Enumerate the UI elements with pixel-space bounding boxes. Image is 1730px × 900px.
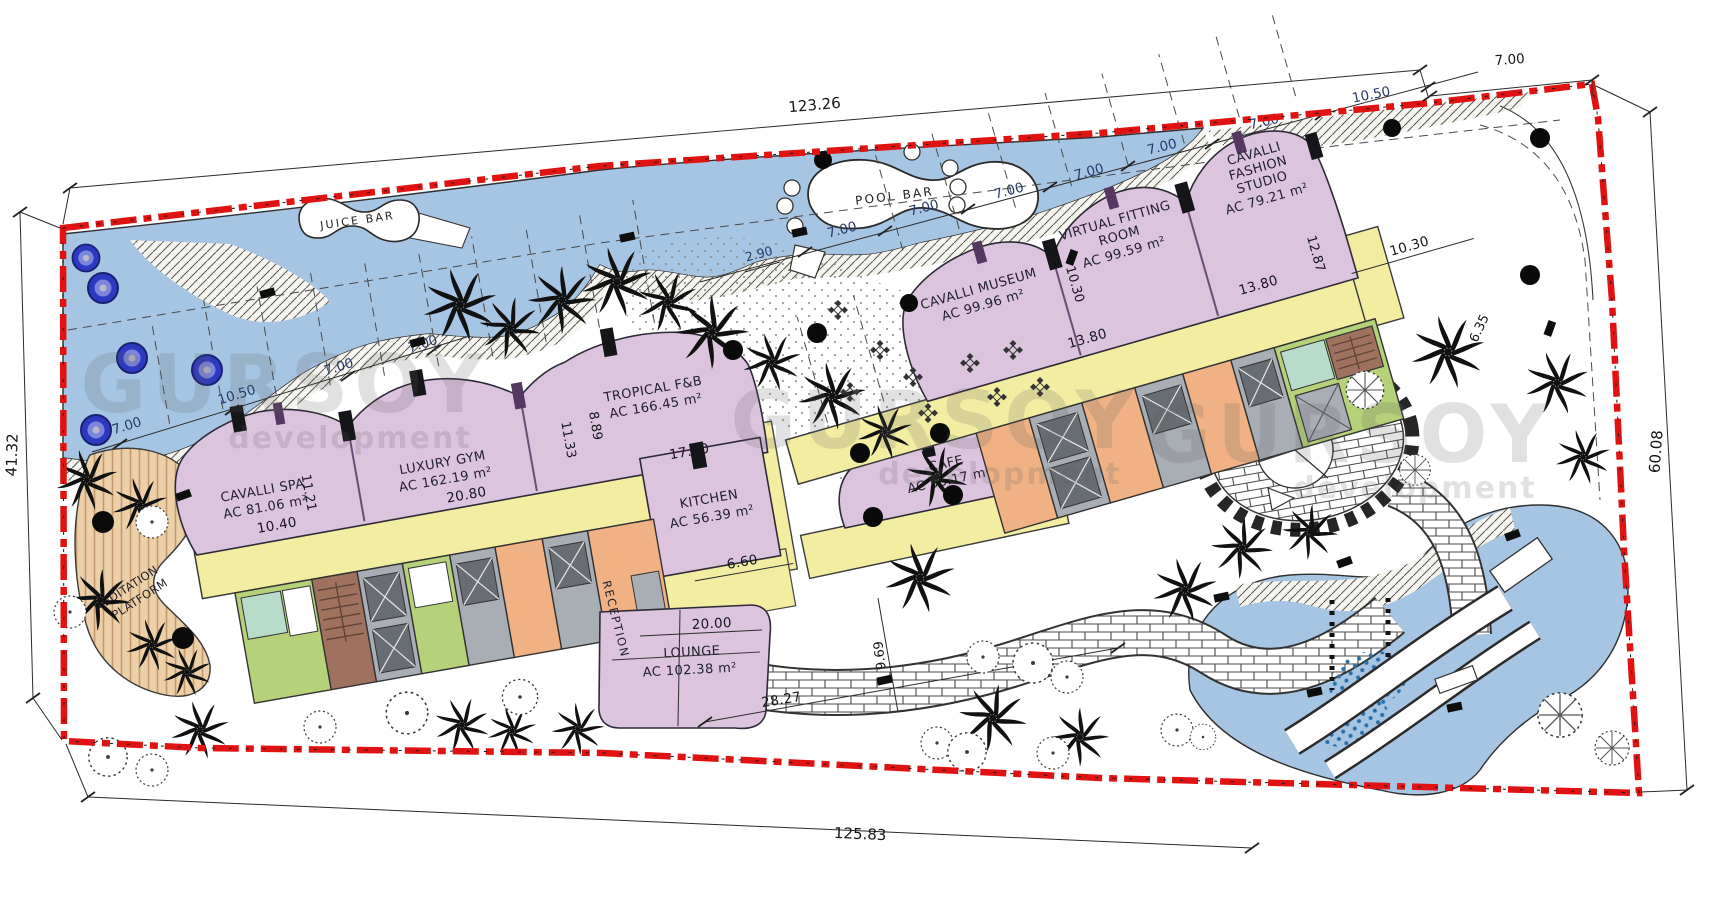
tree-icon (502, 679, 537, 714)
umbrella-icon (73, 245, 100, 272)
room-cell (408, 562, 452, 608)
watermark-text: development (1293, 471, 1536, 506)
tree-icon (1161, 714, 1193, 746)
tree-icon (136, 506, 168, 538)
dim-plot-top: 123.26 (788, 94, 842, 117)
deck-dot (172, 627, 194, 649)
dim-path-width: 9.69 (871, 640, 889, 671)
dim-plot-right: 60.08 (1646, 430, 1667, 474)
palm-tree-icon (1556, 430, 1610, 484)
watermark-text: development (228, 421, 471, 456)
watermark: GURSOY development (731, 374, 1140, 492)
tree-icon (948, 733, 986, 771)
tree-icon (1051, 661, 1083, 693)
dim-plot-left: 41.32 (2, 433, 21, 477)
dim-plot-bottom: 125.83 (834, 824, 887, 844)
tree-icon (304, 711, 336, 743)
tree-icon (54, 596, 86, 628)
tree-icon (1190, 724, 1216, 750)
watermark-text: GURSOY (731, 374, 1140, 467)
watermark-text: GURSOY (81, 338, 490, 431)
dim-rooms-width: 6.35 (1467, 312, 1493, 345)
tree-icon (1538, 693, 1582, 737)
umbrella-icon (88, 273, 118, 303)
tree-icon (1013, 643, 1053, 683)
stool (949, 197, 965, 213)
stool (784, 180, 800, 196)
lounge-label: LOUNGE (663, 644, 721, 662)
watermark-text: development (878, 457, 1121, 492)
dim-plot-corner: 7.00 (1494, 51, 1525, 69)
tree-icon (1595, 731, 1629, 765)
stool (942, 160, 958, 176)
room-cell (241, 591, 288, 639)
tree-icon (136, 754, 168, 786)
site-plan-canvas: MEDITATION PLATFORM POOL BAR JUICE BAR 7… (0, 0, 1730, 900)
deck-dot (92, 511, 114, 533)
dim-grid: 10.50 (1351, 84, 1392, 107)
tree-icon (386, 692, 428, 734)
palm-tree-icon (488, 707, 536, 755)
stool (777, 198, 793, 214)
tree-icon (967, 641, 999, 673)
stool (950, 179, 966, 195)
tree-icon (1037, 737, 1069, 769)
watermark-text: GURSOY (1146, 388, 1555, 481)
dim-fashion-width: 10.30 (1388, 233, 1431, 259)
site-plan: MEDITATION PLATFORM POOL BAR JUICE BAR 7… (0, 0, 1730, 900)
dim-lounge-width: 20.00 (691, 615, 732, 633)
